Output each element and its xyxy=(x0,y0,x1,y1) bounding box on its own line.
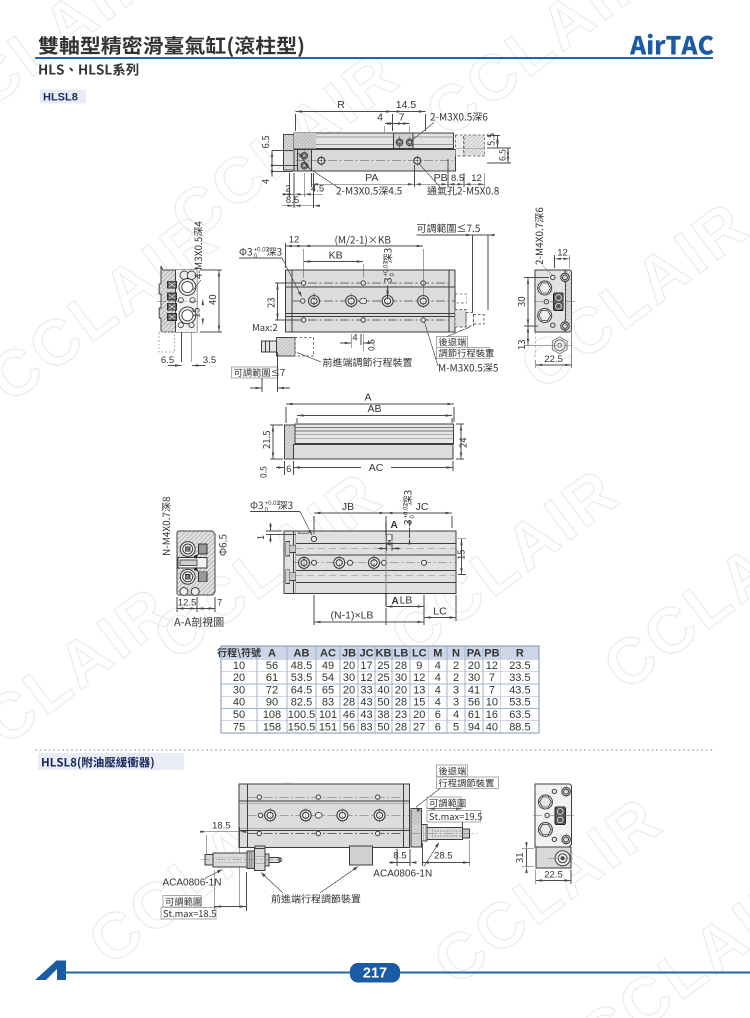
svg-text:158: 158 xyxy=(263,721,281,733)
svg-text:25: 25 xyxy=(377,672,389,684)
svg-text:82.5: 82.5 xyxy=(291,697,312,709)
svg-text:PB: PB xyxy=(484,648,499,660)
svg-text:7: 7 xyxy=(399,112,405,124)
svg-text:20: 20 xyxy=(395,684,407,696)
svg-text:20: 20 xyxy=(468,660,480,672)
svg-text:3: 3 xyxy=(453,684,459,696)
svg-text:40: 40 xyxy=(377,684,389,696)
svg-text:22.5: 22.5 xyxy=(544,354,563,365)
svg-text:10: 10 xyxy=(233,660,245,672)
svg-text:28: 28 xyxy=(343,697,355,709)
svg-text:12: 12 xyxy=(413,672,425,684)
svg-text:AB: AB xyxy=(367,403,381,415)
svg-text:100.5: 100.5 xyxy=(288,709,316,721)
svg-text:56: 56 xyxy=(468,697,480,709)
svg-text:56: 56 xyxy=(343,721,355,733)
svg-text:PA: PA xyxy=(365,172,378,184)
svg-text:151: 151 xyxy=(319,721,337,733)
svg-text:JB: JB xyxy=(342,648,356,660)
svg-text:(N-1)×LB: (N-1)×LB xyxy=(331,610,374,622)
svg-text:R: R xyxy=(337,99,345,111)
svg-text:0: 0 xyxy=(265,508,269,514)
svg-text:18.5: 18.5 xyxy=(212,821,231,832)
svg-text:8.5: 8.5 xyxy=(451,173,464,184)
svg-text:63.5: 63.5 xyxy=(509,709,530,721)
svg-text:23.5: 23.5 xyxy=(509,660,530,672)
svg-text:90: 90 xyxy=(266,697,278,709)
svg-text:A: A xyxy=(268,648,276,660)
svg-text:LB: LB xyxy=(394,648,409,660)
svg-text:AC: AC xyxy=(320,648,336,660)
svg-text:30: 30 xyxy=(395,672,407,684)
svg-text:4: 4 xyxy=(435,697,441,709)
svg-text:12: 12 xyxy=(471,173,482,184)
svg-text:12.5: 12.5 xyxy=(178,598,197,609)
svg-text:38: 38 xyxy=(377,709,389,721)
svg-text:+0.02: +0.02 xyxy=(403,503,409,519)
svg-text:50: 50 xyxy=(233,709,245,721)
svg-text:43.5: 43.5 xyxy=(509,684,530,696)
svg-text:12: 12 xyxy=(289,235,300,246)
svg-text:+0.03: +0.03 xyxy=(383,261,389,277)
svg-text:KB: KB xyxy=(329,250,343,262)
svg-text:16: 16 xyxy=(486,709,498,721)
svg-text:+0.03: +0.03 xyxy=(254,247,270,253)
svg-text:28: 28 xyxy=(395,697,407,709)
svg-text:50: 50 xyxy=(377,697,389,709)
svg-text:3: 3 xyxy=(453,697,459,709)
svg-text:12: 12 xyxy=(557,248,568,259)
svg-text:JB: JB xyxy=(342,501,354,513)
svg-text:61: 61 xyxy=(468,709,480,721)
svg-text:50: 50 xyxy=(377,721,389,733)
svg-text:25: 25 xyxy=(377,660,389,672)
svg-text:94: 94 xyxy=(468,721,480,733)
svg-text:6: 6 xyxy=(286,464,291,475)
svg-text:A: A xyxy=(364,392,371,404)
svg-text:12: 12 xyxy=(486,660,498,672)
svg-text:3.5: 3.5 xyxy=(203,355,216,366)
svg-text:7: 7 xyxy=(217,598,222,609)
svg-text:43: 43 xyxy=(360,697,372,709)
svg-text:13: 13 xyxy=(413,684,425,696)
svg-text:75: 75 xyxy=(233,721,245,733)
svg-text:2: 2 xyxy=(453,672,459,684)
svg-text:28.5: 28.5 xyxy=(434,851,453,862)
svg-text:0: 0 xyxy=(254,254,258,260)
svg-text:72: 72 xyxy=(266,684,278,696)
svg-text:JC: JC xyxy=(416,501,429,513)
svg-text:30: 30 xyxy=(468,672,480,684)
svg-text:15: 15 xyxy=(413,697,425,709)
svg-text:A: A xyxy=(392,596,399,607)
svg-text:53.5: 53.5 xyxy=(291,672,312,684)
svg-text:0: 0 xyxy=(410,515,416,519)
svg-text:4: 4 xyxy=(387,538,392,548)
svg-text:49: 49 xyxy=(322,660,334,672)
svg-text:AB: AB xyxy=(294,648,310,660)
svg-text:8.5: 8.5 xyxy=(393,851,406,862)
svg-text:33: 33 xyxy=(360,684,372,696)
svg-text:N: N xyxy=(452,648,460,660)
svg-text:22.5: 22.5 xyxy=(544,870,563,881)
svg-text:61: 61 xyxy=(266,672,278,684)
svg-text:12: 12 xyxy=(360,672,372,684)
svg-text:83: 83 xyxy=(322,697,334,709)
svg-text:ACA0806-1N: ACA0806-1N xyxy=(163,878,222,889)
svg-text:54: 54 xyxy=(322,672,334,684)
svg-text:17: 17 xyxy=(360,660,372,672)
svg-text:108: 108 xyxy=(263,709,281,721)
svg-text:JC: JC xyxy=(359,648,373,660)
svg-text:PA: PA xyxy=(467,648,482,660)
svg-text:4: 4 xyxy=(435,672,441,684)
svg-text:27: 27 xyxy=(413,721,425,733)
svg-text:+0.03: +0.03 xyxy=(265,501,281,507)
svg-text:53.5: 53.5 xyxy=(509,697,530,709)
svg-text:14.5: 14.5 xyxy=(396,99,417,111)
svg-text:48.5: 48.5 xyxy=(291,660,312,672)
svg-text:28: 28 xyxy=(395,660,407,672)
svg-text:41: 41 xyxy=(468,684,480,696)
svg-text:4: 4 xyxy=(453,709,459,721)
svg-text:20: 20 xyxy=(343,660,355,672)
svg-text:LC: LC xyxy=(433,606,447,618)
svg-text:2: 2 xyxy=(453,660,459,672)
svg-text:64.5: 64.5 xyxy=(291,684,312,696)
svg-text:6: 6 xyxy=(435,721,441,733)
svg-text:20: 20 xyxy=(343,684,355,696)
svg-text:30: 30 xyxy=(233,684,245,696)
svg-text:217: 217 xyxy=(363,966,387,982)
svg-text:4.5: 4.5 xyxy=(311,184,324,195)
svg-text:101: 101 xyxy=(319,709,337,721)
svg-text:LB: LB xyxy=(400,595,413,607)
svg-text:6.5: 6.5 xyxy=(161,355,174,366)
svg-text:40: 40 xyxy=(486,721,498,733)
svg-text:56: 56 xyxy=(266,660,278,672)
svg-text:A: A xyxy=(391,520,398,531)
svg-text:9: 9 xyxy=(416,660,422,672)
svg-text:5: 5 xyxy=(453,721,459,733)
svg-text:65: 65 xyxy=(322,684,334,696)
svg-text:8.5: 8.5 xyxy=(286,195,299,206)
svg-text:AC: AC xyxy=(369,462,384,474)
svg-text:7: 7 xyxy=(489,672,495,684)
svg-text:LC: LC xyxy=(412,648,427,660)
svg-text:HLSL8: HLSL8 xyxy=(43,92,78,104)
svg-text:4: 4 xyxy=(352,333,357,344)
svg-text:43: 43 xyxy=(360,709,372,721)
svg-text:ACA0806-1N: ACA0806-1N xyxy=(373,869,432,880)
svg-text:6: 6 xyxy=(435,709,441,721)
svg-text:28: 28 xyxy=(395,721,407,733)
svg-text:10: 10 xyxy=(486,697,498,709)
svg-text:150.5: 150.5 xyxy=(288,721,316,733)
svg-text:33.5: 33.5 xyxy=(509,672,530,684)
svg-text:30: 30 xyxy=(343,672,355,684)
svg-text:R: R xyxy=(516,648,524,660)
svg-text:88.5: 88.5 xyxy=(509,721,530,733)
svg-text:23: 23 xyxy=(395,709,407,721)
svg-text:40: 40 xyxy=(233,697,245,709)
svg-text:4: 4 xyxy=(435,684,441,696)
svg-text:20: 20 xyxy=(233,672,245,684)
svg-text:7: 7 xyxy=(489,684,495,696)
svg-text:2: 2 xyxy=(285,184,290,195)
svg-text:4: 4 xyxy=(435,660,441,672)
svg-text:4: 4 xyxy=(377,112,383,124)
svg-text:83: 83 xyxy=(360,721,372,733)
svg-text:M: M xyxy=(433,648,442,660)
svg-text:46: 46 xyxy=(343,709,355,721)
svg-text:20: 20 xyxy=(413,709,425,721)
svg-text:KB: KB xyxy=(376,648,392,660)
